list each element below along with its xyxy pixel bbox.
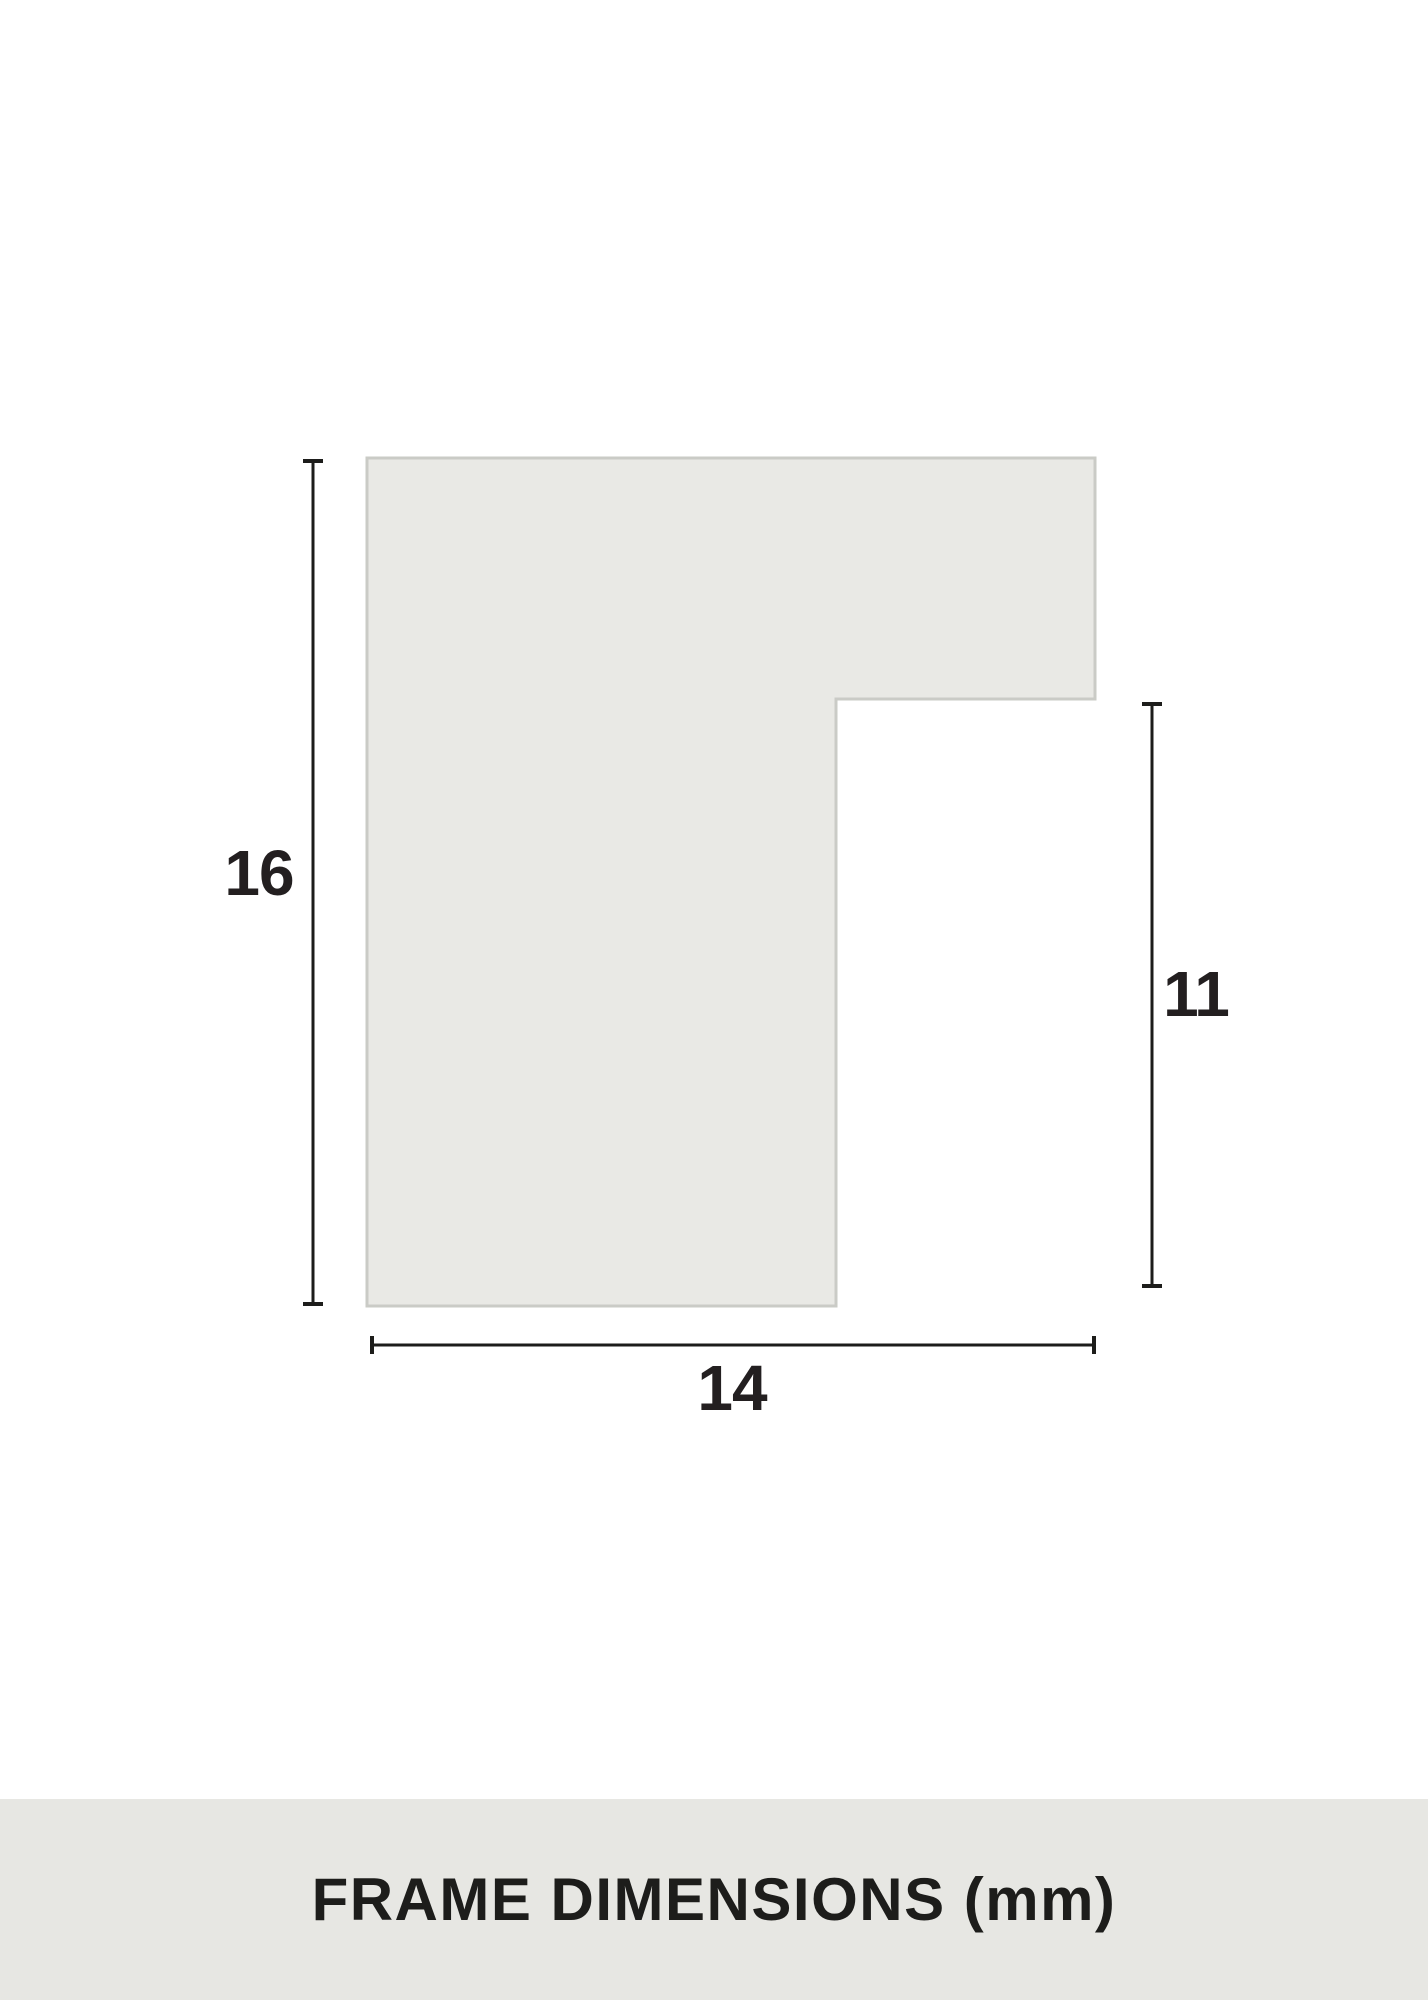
rabbet-dimension-label: 11 xyxy=(1163,962,1229,1026)
page: 16 11 14 FRAME DIMENSIONS (mm) xyxy=(0,0,1428,2000)
footer-band: FRAME DIMENSIONS (mm) xyxy=(0,1799,1428,2000)
frame-profile-cross-section xyxy=(367,458,1095,1306)
height-dimension-label: 16 xyxy=(224,841,293,905)
rabbet-dimension-line xyxy=(1142,704,1162,1286)
width-dimension-label: 14 xyxy=(697,1356,766,1420)
footer-title: FRAME DIMENSIONS (mm) xyxy=(312,1870,1117,1930)
height-dimension-line xyxy=(303,461,323,1304)
